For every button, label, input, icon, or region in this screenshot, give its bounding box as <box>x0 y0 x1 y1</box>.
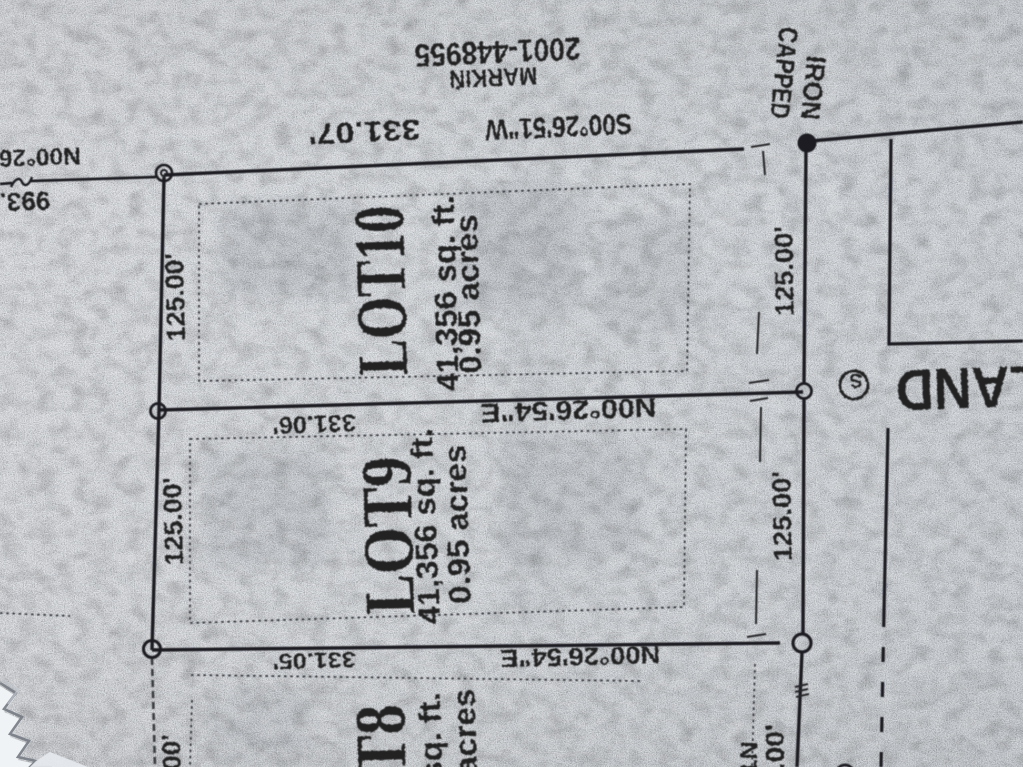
svg-text:125.00': 125.00' <box>768 226 800 317</box>
svg-text:NT: NT <box>734 741 762 767</box>
svg-text:S: S <box>849 369 863 391</box>
svg-text:S00°26'51"W: S00°26'51"W <box>484 107 633 145</box>
svg-text:N00°26'54"E: N00°26'54"E <box>0 142 81 174</box>
svg-text:125.00': 125.00' <box>766 471 798 562</box>
svg-text:331.05': 331.05' <box>272 647 356 674</box>
svg-text:LAND: LAND <box>895 352 1023 422</box>
svg-text:0.95 acres: 0.95 acres <box>446 688 487 767</box>
svg-text:LOT10: LOT10 <box>339 205 423 377</box>
svg-text:0.95 acres: 0.95 acres <box>437 444 478 604</box>
svg-text:331.07': 331.07' <box>308 113 421 150</box>
svg-text:993.75': 993.75' <box>0 186 51 219</box>
svg-text:0.95 acres: 0.95 acres <box>449 214 488 374</box>
svg-text:N00°26'54"E: N00°26'54"E <box>480 392 657 428</box>
svg-text:25.00': 25.00' <box>759 724 790 767</box>
svg-text:331.06': 331.06' <box>272 409 356 439</box>
svg-text:MARKIN: MARKIN <box>449 61 538 93</box>
svg-text:N00°26'54"E: N00°26'54"E <box>500 640 661 672</box>
svg-text:125.00': 125.00' <box>157 477 189 566</box>
svg-text:125.00': 125.00' <box>156 734 188 767</box>
svg-text:125.00': 125.00' <box>159 253 191 342</box>
